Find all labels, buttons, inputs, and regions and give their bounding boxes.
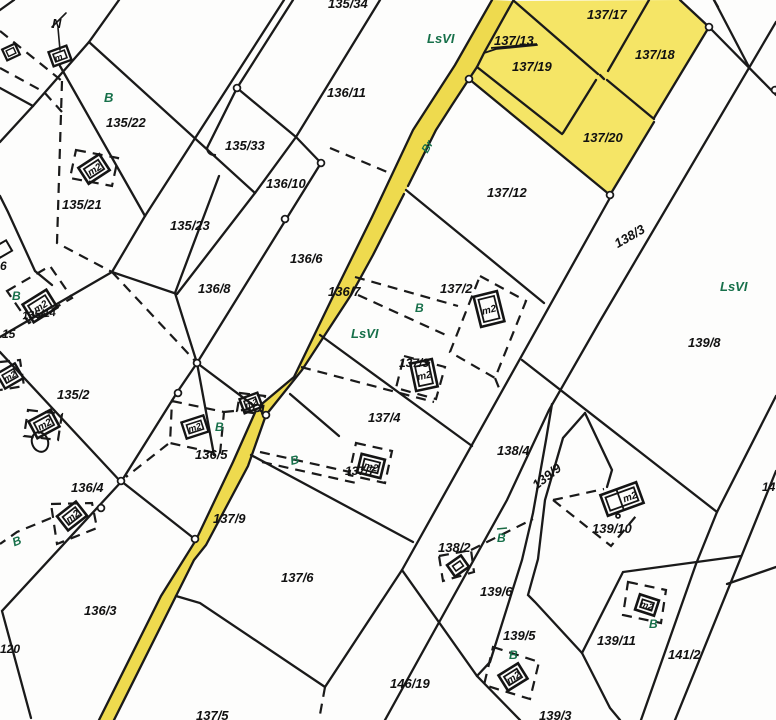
svg-text:135/14: 135/14: [22, 307, 57, 322]
svg-text:137/3: 137/3: [399, 356, 429, 370]
svg-text:120: 120: [0, 642, 20, 656]
svg-text:LsVI: LsVI: [720, 279, 748, 294]
svg-text:139/5: 139/5: [503, 628, 536, 643]
svg-text:141/2: 141/2: [668, 647, 701, 662]
svg-text:135/33: 135/33: [225, 138, 266, 153]
svg-text:B: B: [215, 420, 224, 434]
svg-text:B: B: [649, 617, 658, 631]
svg-text:B: B: [509, 648, 518, 662]
svg-text:B: B: [104, 90, 113, 105]
svg-text:B: B: [10, 533, 24, 549]
svg-text:136/7: 136/7: [328, 284, 361, 299]
svg-text:136/4: 136/4: [71, 480, 104, 495]
svg-text:LsVI: LsVI: [351, 326, 379, 341]
svg-text:137/6: 137/6: [281, 570, 314, 585]
svg-text:136/3: 136/3: [84, 603, 117, 618]
svg-text:139/9: 139/9: [529, 460, 564, 492]
svg-text:LsVI: LsVI: [427, 31, 455, 46]
svg-text:B: B: [289, 452, 301, 468]
svg-text:137/19: 137/19: [512, 59, 553, 74]
svg-text:138/2: 138/2: [438, 540, 471, 555]
svg-text:135/21: 135/21: [62, 197, 102, 212]
svg-text:139/8: 139/8: [688, 335, 721, 350]
svg-text:136/6: 136/6: [290, 251, 323, 266]
svg-text:137/17: 137/17: [587, 7, 628, 22]
svg-text:m2: m2: [416, 369, 433, 383]
svg-text:139/11: 139/11: [597, 633, 636, 648]
svg-text:m2: m2: [481, 303, 498, 317]
svg-text:137/5: 137/5: [196, 708, 229, 720]
svg-text:137/7: 137/7: [345, 464, 376, 478]
svg-text:B: B: [497, 531, 506, 545]
svg-text:6: 6: [0, 259, 7, 273]
svg-text:138/3: 138/3: [612, 221, 648, 251]
svg-text:136/8: 136/8: [198, 281, 231, 296]
svg-text:137/4: 137/4: [368, 410, 401, 425]
svg-text:139/10: 139/10: [592, 521, 633, 536]
svg-text:146/19: 146/19: [390, 676, 431, 691]
svg-text:136/5: 136/5: [195, 447, 228, 462]
svg-text:137/18: 137/18: [635, 47, 676, 62]
svg-text:139/6: 139/6: [480, 584, 513, 599]
svg-text:14: 14: [762, 480, 776, 494]
svg-text:B: B: [415, 301, 424, 315]
svg-text:15: 15: [2, 327, 16, 341]
svg-text:B: B: [12, 289, 21, 303]
svg-text:136/11: 136/11: [327, 85, 366, 100]
svg-text:135/34: 135/34: [328, 0, 369, 11]
svg-text:m2: m2: [622, 490, 640, 505]
svg-text:135/23: 135/23: [170, 218, 211, 233]
svg-text:137/20: 137/20: [583, 130, 624, 145]
svg-text:135/22: 135/22: [106, 115, 147, 130]
svg-text:137/12: 137/12: [487, 185, 528, 200]
svg-text:m2: m2: [187, 421, 202, 435]
svg-text:135/2: 135/2: [57, 387, 90, 402]
svg-text:138/4: 138/4: [497, 443, 530, 458]
svg-text:137/9: 137/9: [213, 511, 246, 526]
svg-text:136/10: 136/10: [266, 176, 307, 191]
svg-text:N: N: [52, 16, 62, 31]
svg-text:137/2: 137/2: [440, 281, 473, 296]
svg-text:139/3: 139/3: [539, 708, 572, 720]
